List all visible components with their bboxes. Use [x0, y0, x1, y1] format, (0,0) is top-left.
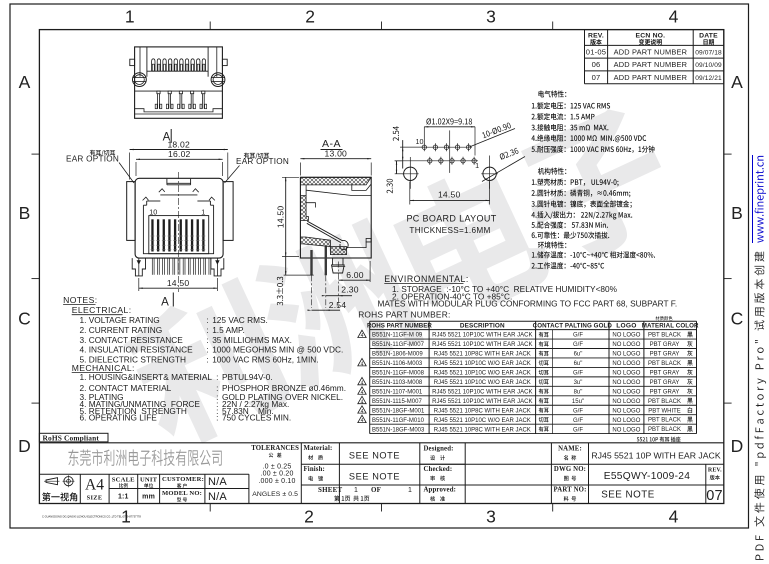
svg-text:TOLERANCES: TOLERANCES [251, 445, 299, 452]
svg-text:SEE NOTE: SEE NOTE [601, 490, 655, 501]
svg-text:6u": 6u" [574, 352, 583, 358]
svg-text:1: 1 [201, 207, 205, 216]
svg-text:14.50: 14.50 [438, 190, 461, 200]
svg-text:35 MILLIOHMS MAX.: 35 MILLIOHMS MAX. [212, 335, 292, 345]
svg-text:2.54: 2.54 [329, 300, 347, 310]
svg-text:4: 4 [669, 7, 679, 27]
svg-text:06: 06 [592, 60, 601, 69]
svg-text:13.00: 13.00 [325, 149, 348, 159]
svg-text:1000 MEGOHMS MIN @ 500 VDC.: 1000 MEGOHMS MIN @ 500 VDC. [212, 345, 343, 355]
svg-text:EAR OPTION: EAR OPTION [66, 155, 119, 164]
svg-text:15u": 15u" [572, 399, 584, 405]
svg-text:NO LOGO: NO LOGO [612, 380, 640, 386]
svg-text:G/F: G/F [573, 333, 583, 339]
svg-text:16.02: 16.02 [168, 149, 191, 159]
svg-text:B551N-1115-M007: B551N-1115-M007 [372, 399, 422, 405]
svg-text:1000 VAC RMS 60Hz, 1MIN.: 1000 VAC RMS 60Hz, 1MIN. [212, 355, 318, 365]
svg-text:DATE: DATE [699, 33, 718, 40]
svg-text:3: 3 [486, 7, 496, 27]
svg-text:SEE NOTE: SEE NOTE [349, 451, 400, 461]
svg-text:SIZE: SIZE [87, 495, 103, 502]
svg-text:G/F: G/F [573, 371, 583, 377]
svg-text:RJ45 5521 10P10C WITH EAR JACK: RJ45 5521 10P10C WITH EAR JACK [432, 389, 532, 395]
svg-text:G/F: G/F [573, 408, 583, 414]
svg-text:NO LOGO: NO LOGO [612, 352, 640, 358]
svg-text:A: A [731, 72, 743, 92]
svg-text:PBT WHITE: PBT WHITE [648, 408, 681, 414]
svg-text:MATERIAL COLOR: MATERIAL COLOR [642, 323, 699, 330]
svg-text:A: A [19, 72, 31, 92]
svg-text:NOTES:: NOTES: [63, 295, 97, 305]
svg-text:RJ45 5521 10P10C WITH EAR JACK: RJ45 5521 10P10C WITH EAR JACK [432, 399, 532, 405]
svg-text:PBT BLACK: PBT BLACK [648, 427, 681, 433]
svg-text:PBT BLACK: PBT BLACK [648, 361, 681, 367]
svg-text:NO LOGO: NO LOGO [612, 333, 640, 339]
svg-text:RJ45 5521 10P8C WITH EAR JACK: RJ45 5521 10P8C WITH EAR JACK [434, 408, 531, 414]
svg-text:2: 2 [304, 507, 314, 527]
svg-text:B551N-18GF-M001: B551N-18GF-M001 [372, 408, 425, 414]
svg-text:ADD PART NUMBER: ADD PART NUMBER [614, 47, 688, 56]
svg-text:Designed:: Designed: [424, 446, 454, 453]
svg-text:B551N-1107-M001: B551N-1107-M001 [372, 389, 423, 395]
svg-text:NO LOGO: NO LOGO [612, 371, 640, 377]
svg-text:PBT BLACK: PBT BLACK [648, 399, 681, 405]
svg-text:1. HOUSING&INSERT& MATERIAL: 1. HOUSING&INSERT& MATERIAL [80, 372, 213, 382]
svg-text:4: 4 [361, 333, 364, 339]
svg-text:RJ45 5521 10P8C WITH EAR JACK: RJ45 5521 10P8C WITH EAR JACK [434, 352, 531, 358]
svg-text:N/A: N/A [208, 491, 227, 503]
svg-text:ROHS PART NUMBER:: ROHS PART NUMBER: [358, 310, 450, 320]
svg-text:RJ45 5521 10P10C W/O EAR JACK: RJ45 5521 10P10C W/O EAR JACK [434, 380, 531, 386]
svg-text::: : [206, 335, 208, 345]
svg-text:A: A [161, 297, 169, 309]
svg-text:ANGLES ± 0.5: ANGLES ± 0.5 [252, 491, 298, 498]
svg-text:ENVIRONMENTAL:: ENVIRONMENTAL: [384, 274, 469, 284]
svg-text:N/A: N/A [208, 476, 227, 488]
svg-text:UNIT: UNIT [140, 477, 158, 484]
svg-text::: : [216, 413, 218, 423]
svg-text:EAR OPTION: EAR OPTION [236, 157, 289, 166]
svg-text:1: 1 [408, 487, 412, 494]
svg-text:1: 1 [125, 7, 135, 27]
svg-text:B551N-18GF-M003: B551N-18GF-M003 [372, 427, 425, 433]
svg-text:B551N-11GF-M008: B551N-11GF-M008 [372, 371, 425, 377]
svg-text:PBT GRAY: PBT GRAY [650, 380, 680, 386]
svg-text:4: 4 [361, 380, 364, 386]
svg-text:mm: mm [142, 494, 155, 501]
svg-text:E55QWY-1009-24: E55QWY-1009-24 [604, 471, 691, 482]
svg-text:ADD PART NUMBER: ADD PART NUMBER [614, 73, 688, 82]
svg-text:B551N-11GF-M007: B551N-11GF-M007 [372, 342, 425, 348]
svg-text:PBT GRAY: PBT GRAY [650, 389, 680, 395]
svg-text:OF: OF [371, 486, 381, 494]
svg-text:DWG NO:: DWG NO: [554, 466, 586, 473]
svg-text:6u": 6u" [574, 361, 583, 367]
svg-text:3u": 3u" [574, 380, 583, 386]
svg-text:D: D [18, 436, 31, 456]
svg-text:NO LOGO: NO LOGO [612, 408, 640, 414]
svg-text:4: 4 [361, 418, 364, 424]
svg-text:DESCRIPTION: DESCRIPTION [460, 323, 505, 330]
svg-text:4: 4 [669, 507, 679, 527]
svg-text:B551N-11GF-M 09: B551N-11GF-M 09 [372, 333, 423, 339]
svg-text:SCALE: SCALE [112, 477, 135, 484]
svg-text:.00 ± 0.20: .00 ± 0.20 [260, 471, 293, 478]
svg-text:1. VOLTAGE RATING: 1. VOLTAGE RATING [80, 315, 160, 325]
svg-text:Approved:: Approved: [424, 487, 457, 494]
svg-text:NAME:: NAME: [558, 446, 582, 453]
svg-text:RJ45 5521 10P8C WITH EAR JACK: RJ45 5521 10P8C WITH EAR JACK [434, 427, 531, 433]
svg-text:D: D [731, 436, 744, 456]
svg-text:B551N-11GF-M010: B551N-11GF-M010 [372, 418, 425, 424]
svg-text:LOGO: LOGO [616, 323, 636, 330]
svg-text:.000 ± 0.10: .000 ± 0.10 [258, 478, 295, 485]
svg-text:RoHS Compliant: RoHS Compliant [43, 433, 100, 442]
svg-text:PBT GRAY: PBT GRAY [650, 342, 680, 348]
svg-text::: : [206, 355, 208, 365]
svg-text:4. INSULATION RESISTANCE: 4. INSULATION RESISTANCE [80, 345, 194, 355]
svg-text:2.30: 2.30 [341, 284, 359, 294]
svg-text:ECN NO.: ECN NO. [636, 33, 666, 40]
svg-text:1:1: 1:1 [118, 494, 129, 501]
svg-text:NO LOGO: NO LOGO [612, 361, 640, 367]
svg-text:NO LOGO: NO LOGO [612, 418, 640, 424]
svg-text:C GUANGDONG DG.QINGXI LIZHOU E: C GUANGDONG DG.QINGXI LIZHOU ELECTRONICS… [42, 515, 141, 519]
svg-text:10: 10 [416, 137, 424, 146]
svg-text:REV.: REV. [588, 33, 604, 40]
svg-text:RJ45 5521 10P WITH EAR JACK: RJ45 5521 10P WITH EAR JACK [591, 450, 720, 460]
svg-text:PART NO:: PART NO: [554, 487, 587, 494]
svg-text:SEE NOTE: SEE NOTE [349, 472, 400, 482]
svg-text:RJ45 5521 10P10C W/O EAR JACK: RJ45 5521 10P10C W/O EAR JACK [434, 371, 531, 377]
svg-text:CUSTOMER:: CUSTOMER: [162, 476, 204, 483]
svg-text:SHEET: SHEET [318, 486, 342, 494]
svg-text:C: C [18, 309, 31, 329]
svg-text:2. CURRENT RATING: 2. CURRENT RATING [80, 325, 163, 335]
svg-text:07: 07 [592, 73, 601, 82]
svg-text:14.50: 14.50 [167, 278, 190, 288]
svg-text:4: 4 [361, 361, 364, 367]
svg-text:PBT GRAY: PBT GRAY [650, 370, 680, 376]
svg-text:09/07/18: 09/07/18 [695, 49, 722, 56]
svg-text:MATES WITH MODULAR PLUG CONFOR: MATES WITH MODULAR PLUG CONFORMING TO FC… [378, 299, 678, 309]
svg-text:RJ45 5521 10P10C W/O EAR JACK: RJ45 5521 10P10C W/O EAR JACK [434, 361, 531, 367]
svg-text:PC BOARD LAYOUT: PC BOARD LAYOUT [406, 214, 496, 224]
svg-text:09/12/21: 09/12/21 [695, 75, 722, 82]
svg-text:18.02: 18.02 [167, 139, 190, 149]
svg-text:1: 1 [475, 161, 479, 170]
svg-text:.0 ± 0.25: .0 ± 0.25 [263, 463, 292, 470]
svg-text:REV.: REV. [708, 468, 722, 474]
svg-text:8u": 8u" [574, 389, 583, 395]
svg-text:B551N-1806-M009: B551N-1806-M009 [372, 352, 423, 358]
svg-text:C: C [731, 309, 744, 329]
svg-text:RJ45 5521 10P10C WITH EAR JACK: RJ45 5521 10P10C WITH EAR JACK [432, 333, 532, 339]
svg-text::: : [216, 372, 218, 382]
svg-text:01-05: 01-05 [586, 47, 606, 56]
svg-text:NO LOGO: NO LOGO [612, 427, 640, 433]
svg-text:09/10/09: 09/10/09 [695, 62, 722, 69]
svg-text:THICKNESS=1.6MM: THICKNESS=1.6MM [409, 226, 490, 235]
svg-text:G/F: G/F [573, 427, 583, 433]
svg-text:ADD PART NUMBER: ADD PART NUMBER [614, 60, 688, 69]
svg-text:2: 2 [305, 7, 315, 27]
svg-text:PBT BLACK: PBT BLACK [648, 418, 681, 424]
svg-text:6.00: 6.00 [346, 270, 364, 280]
svg-text:G/F: G/F [573, 418, 583, 424]
svg-text:PBT BLACK: PBT BLACK [648, 333, 681, 339]
svg-text:NO LOGO: NO LOGO [612, 399, 640, 405]
svg-text:NO LOGO: NO LOGO [612, 342, 640, 348]
svg-text:07: 07 [706, 488, 723, 504]
svg-text:1: 1 [354, 487, 358, 494]
svg-text:3: 3 [486, 507, 496, 527]
svg-text:PBT GRAY: PBT GRAY [650, 352, 680, 358]
svg-text:B551N-1106-M003: B551N-1106-M003 [372, 361, 423, 367]
svg-text:750 CYCLES MIN.: 750 CYCLES MIN. [222, 413, 291, 423]
svg-text:3. CONTACT RESISTANCE: 3. CONTACT RESISTANCE [80, 335, 184, 345]
svg-text:CONTACT PALTING GOLD: CONTACT PALTING GOLD [533, 323, 613, 330]
svg-text:G/F: G/F [573, 342, 583, 348]
svg-text:A4: A4 [85, 477, 104, 494]
svg-text:B551N-1103-M008: B551N-1103-M008 [372, 380, 423, 386]
svg-text:B: B [19, 203, 31, 223]
svg-text:Finish:: Finish: [304, 466, 325, 473]
svg-text:14.50: 14.50 [276, 206, 286, 229]
svg-text:125 VAC RMS.: 125 VAC RMS. [212, 315, 268, 325]
svg-text:10: 10 [149, 207, 157, 216]
svg-text:4: 4 [361, 390, 364, 396]
svg-text:NO LOGO: NO LOGO [612, 389, 640, 395]
svg-text::: : [206, 345, 208, 355]
svg-text:PBTUL94V-0.: PBTUL94V-0. [222, 372, 273, 382]
svg-text::: : [206, 325, 208, 335]
svg-text:1.5 AMP.: 1.5 AMP. [212, 325, 245, 335]
svg-text:MODEL NO:: MODEL NO: [162, 490, 202, 497]
svg-text:4: 4 [361, 399, 364, 405]
svg-text:4: 4 [361, 409, 364, 415]
svg-text:RJ45 5521 10P10C WITH EAR JACK: RJ45 5521 10P10C WITH EAR JACK [432, 342, 532, 348]
svg-text::: : [206, 315, 208, 325]
svg-text:Material:: Material: [304, 445, 333, 452]
svg-text:6. OPERATING LIFE: 6. OPERATING LIFE [80, 413, 158, 423]
svg-text:RJ45 5521 10P10C W/O EAR JACK: RJ45 5521 10P10C W/O EAR JACK [434, 418, 531, 424]
svg-text:Checked:: Checked: [424, 466, 453, 473]
svg-text:B: B [731, 203, 743, 223]
svg-text:ELECTRICAL:: ELECTRICAL: [72, 305, 132, 315]
svg-text:ROHS PART NUMBER: ROHS PART NUMBER [367, 323, 432, 330]
